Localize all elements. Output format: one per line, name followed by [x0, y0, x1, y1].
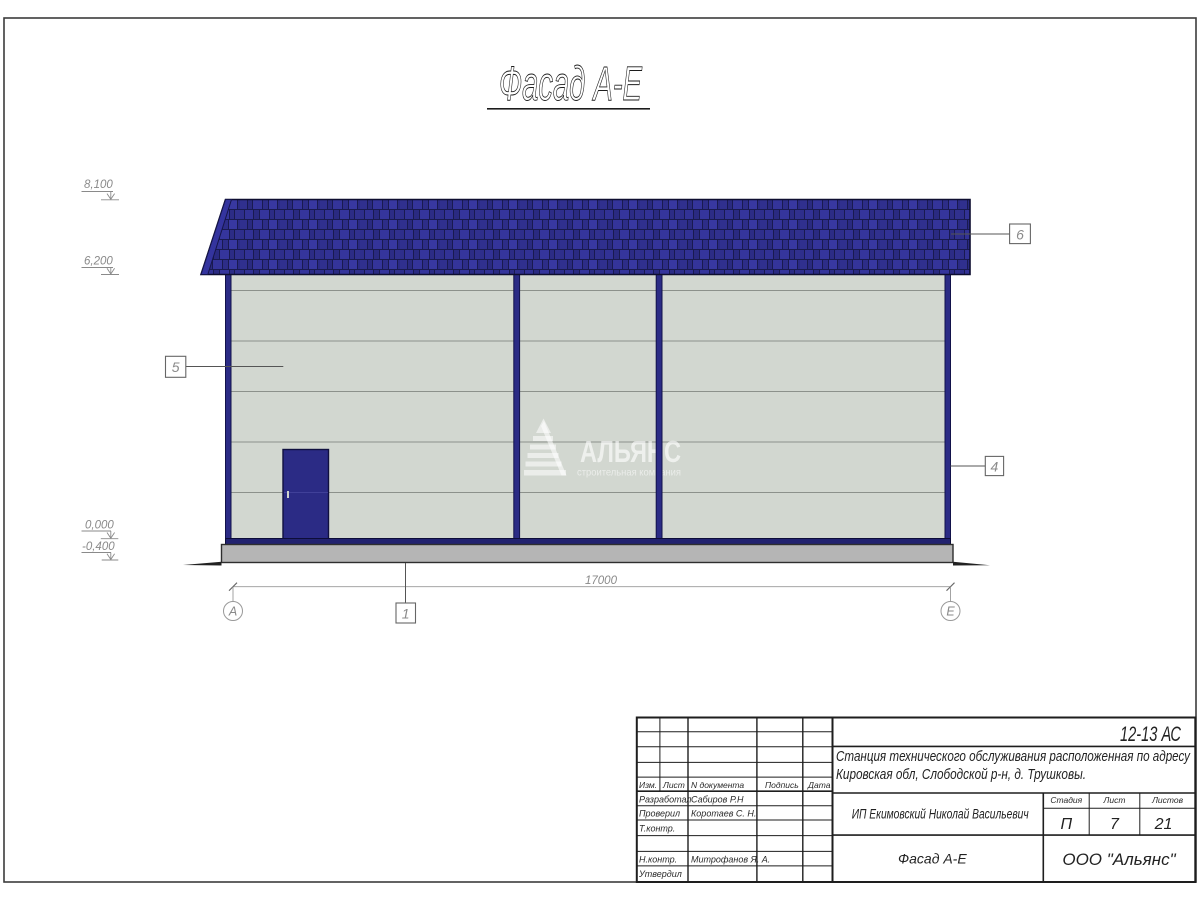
svg-text:Дата: Дата — [807, 780, 831, 790]
svg-text:Е: Е — [946, 605, 955, 619]
svg-text:N документа: N документа — [691, 780, 744, 790]
svg-text:ИП Екимовский Николай Васильев: ИП Екимовский Николай Васильевич — [852, 807, 1029, 822]
svg-text:Утвердил: Утвердил — [638, 869, 682, 879]
svg-text:-0,400: -0,400 — [82, 541, 115, 553]
svg-text:Разработал: Разработал — [639, 795, 691, 805]
svg-text:Н.контр.: Н.контр. — [639, 855, 677, 865]
svg-text:5: 5 — [172, 359, 180, 375]
svg-text:Митрофанов Я. А.: Митрофанов Я. А. — [691, 855, 770, 865]
svg-text:Подпись: Подпись — [765, 780, 799, 790]
svg-text:8,100: 8,100 — [84, 179, 113, 191]
svg-text:АЛЬЯНС: АЛЬЯНС — [580, 434, 681, 469]
svg-text:Лист: Лист — [662, 780, 685, 790]
svg-text:Изм.: Изм. — [639, 780, 657, 790]
svg-text:0,000: 0,000 — [85, 520, 114, 532]
svg-text:Листов: Листов — [1151, 795, 1184, 805]
svg-text:1: 1 — [402, 606, 410, 622]
svg-text:П: П — [1061, 816, 1073, 833]
svg-text:Кировская обл, Слободской р-н,: Кировская обл, Слободской р-н, д. Трушко… — [836, 766, 1086, 783]
svg-text:6,200: 6,200 — [84, 256, 113, 268]
svg-text:Проверил: Проверил — [639, 809, 680, 819]
svg-text:21: 21 — [1154, 816, 1173, 833]
svg-text:12-13 АС: 12-13 АС — [1120, 723, 1182, 746]
svg-text:Сабиров Р.Н: Сабиров Р.Н — [691, 795, 744, 805]
svg-text:Т.контр.: Т.контр. — [639, 824, 675, 834]
svg-text:4: 4 — [991, 459, 999, 475]
svg-text:Стадия: Стадия — [1050, 795, 1082, 805]
svg-text:Коротаев С. Н.: Коротаев С. Н. — [691, 809, 756, 819]
svg-text:Лист: Лист — [1103, 795, 1126, 805]
svg-text:ООО "Альянс": ООО "Альянс" — [1062, 850, 1176, 869]
svg-text:Фасад А-Е: Фасад А-Е — [898, 851, 967, 867]
svg-text:Фасад А-Е: Фасад А-Е — [499, 58, 643, 111]
svg-text:7: 7 — [1110, 816, 1120, 833]
svg-text:А: А — [228, 605, 237, 619]
svg-text:строительная компания: строительная компания — [577, 467, 681, 479]
svg-text:6: 6 — [1016, 227, 1024, 243]
svg-text:17000: 17000 — [585, 575, 618, 587]
svg-text:Станция технического обслужива: Станция технического обслуживания распол… — [836, 748, 1191, 765]
